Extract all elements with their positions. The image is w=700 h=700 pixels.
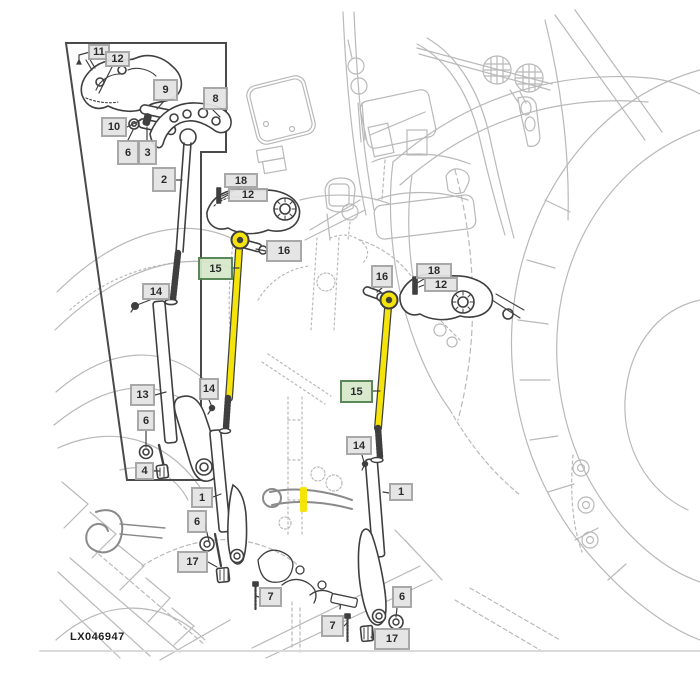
callout-17-mid: 17 bbox=[177, 551, 208, 573]
callout-6-left: 6 bbox=[137, 410, 155, 431]
callout-1-right: 1 bbox=[389, 483, 413, 501]
callout-14-left: 14 bbox=[142, 283, 170, 300]
callout-6-inset: 6 bbox=[117, 140, 139, 165]
callout-7-right: 7 bbox=[321, 615, 344, 637]
callout-7-mid: 7 bbox=[259, 587, 282, 607]
callout-4: 4 bbox=[135, 462, 154, 480]
callout-10: 10 bbox=[101, 117, 127, 137]
exploded-parts-illustration bbox=[0, 0, 700, 700]
callout-16-left: 16 bbox=[266, 240, 302, 262]
callout-13: 13 bbox=[130, 384, 155, 406]
highlighted-pin-center bbox=[300, 487, 307, 512]
callout-14-mid: 14 bbox=[199, 378, 219, 400]
callout-12-top: 12 bbox=[105, 51, 130, 67]
callout-15-left: 15 bbox=[198, 257, 233, 280]
callout-15-right: 15 bbox=[340, 380, 373, 403]
pin-12-left bbox=[217, 188, 221, 203]
callout-12-left: 12 bbox=[228, 188, 268, 202]
callout-16-right: 16 bbox=[371, 265, 393, 288]
callout-9: 9 bbox=[153, 79, 178, 101]
callout-14-right: 14 bbox=[346, 436, 372, 455]
lift-link-15-left bbox=[200, 232, 249, 583]
callout-3: 3 bbox=[138, 140, 157, 165]
callout-1-mid: 1 bbox=[191, 487, 213, 508]
callout-6-right: 6 bbox=[392, 586, 412, 608]
parts-diagram-page: 1112981063218121615141364141618121514116… bbox=[0, 0, 700, 700]
pin-12-right bbox=[413, 277, 417, 294]
callout-17-right: 17 bbox=[374, 628, 410, 650]
callout-2: 2 bbox=[152, 167, 176, 192]
draft-bracket-right bbox=[400, 274, 524, 319]
bolt-7-right bbox=[345, 614, 350, 641]
callout-8: 8 bbox=[203, 87, 228, 110]
callout-12-right: 12 bbox=[424, 277, 458, 292]
callout-18-left: 18 bbox=[224, 173, 258, 188]
callout-6-mid: 6 bbox=[187, 510, 207, 533]
part-code-label: LX046947 bbox=[70, 631, 125, 643]
